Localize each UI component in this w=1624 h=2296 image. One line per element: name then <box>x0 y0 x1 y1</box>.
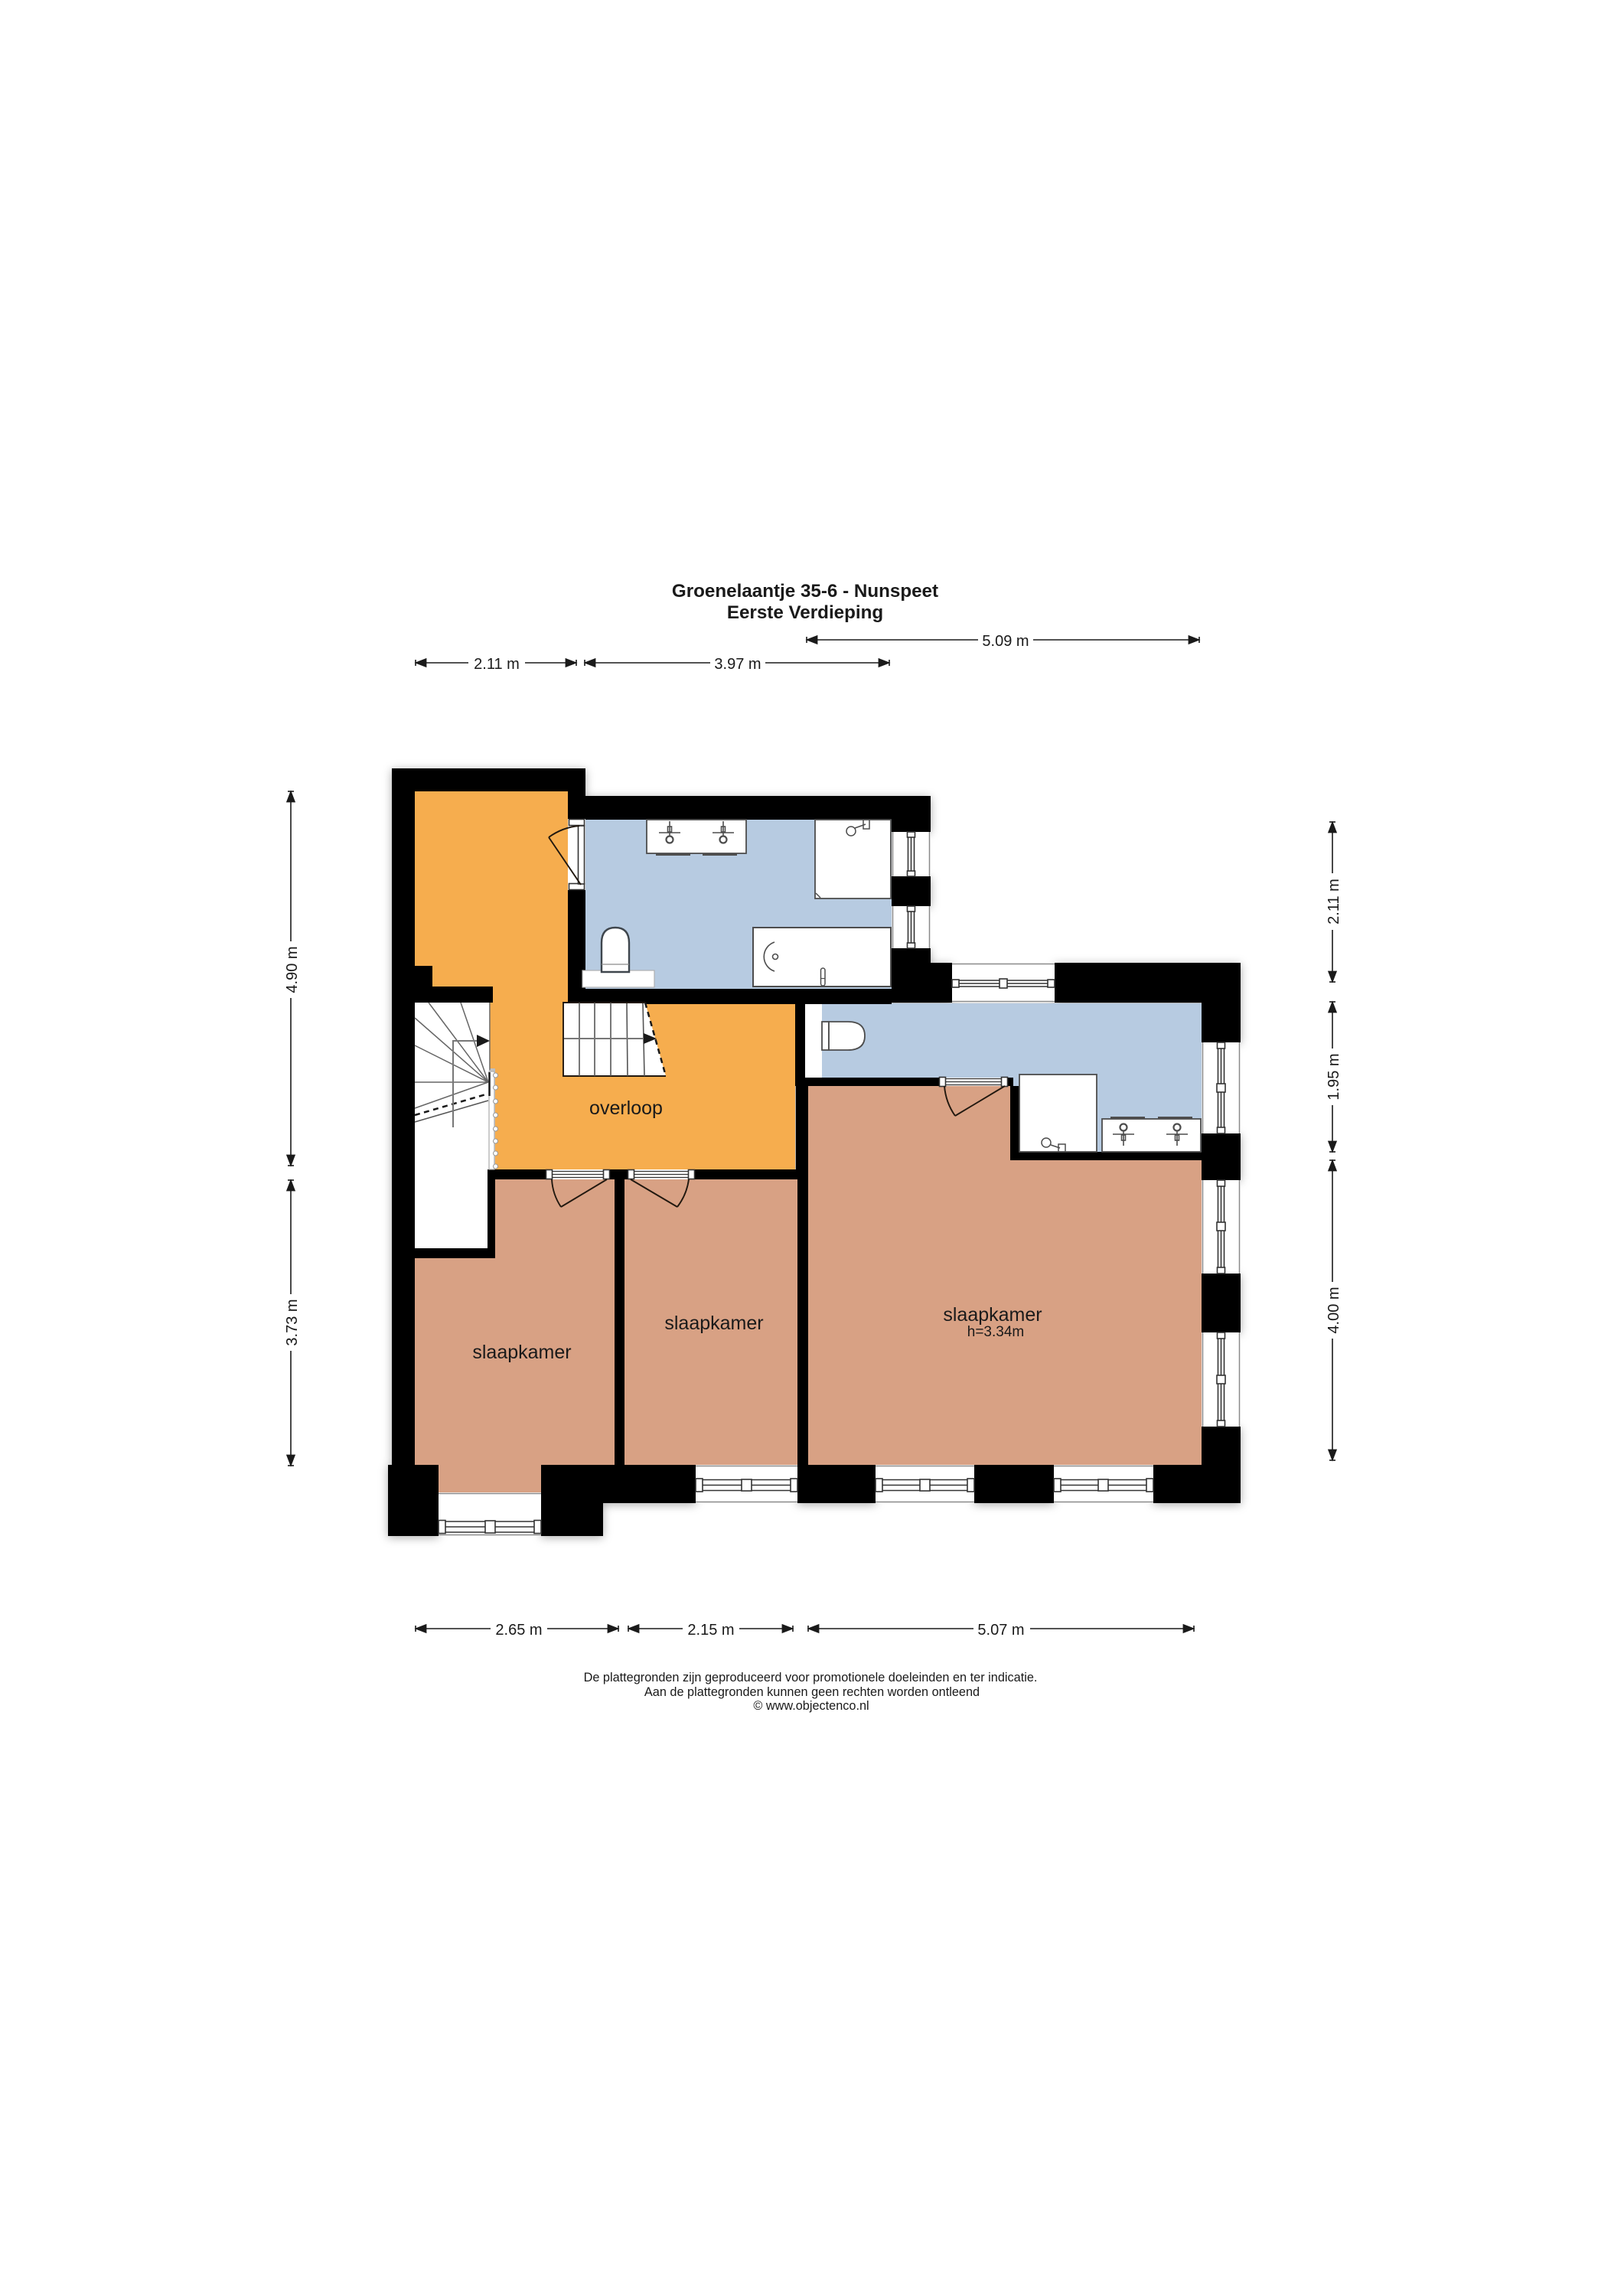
svg-text:h=3.34m: h=3.34m <box>967 1324 1024 1340</box>
svg-text:De plattegronden zijn geproduc: De plattegronden zijn geproduceerd voor … <box>584 1671 1038 1684</box>
svg-text:2.11 m: 2.11 m <box>474 656 520 673</box>
svg-text:2.65 m: 2.65 m <box>495 1622 542 1639</box>
svg-text:4.90 m: 4.90 m <box>284 946 301 993</box>
svg-text:slaapkamer: slaapkamer <box>943 1304 1042 1326</box>
svg-text:1.95 m: 1.95 m <box>1326 1053 1342 1100</box>
svg-text:5.07 m: 5.07 m <box>977 1622 1024 1639</box>
svg-text:Eerste Verdieping: Eerste Verdieping <box>727 602 883 623</box>
svg-text:slaapkamer: slaapkamer <box>664 1313 763 1334</box>
svg-text:4.00 m: 4.00 m <box>1326 1287 1342 1333</box>
svg-text:5.09 m: 5.09 m <box>982 633 1029 650</box>
svg-text:slaapkamer: slaapkamer <box>472 1342 571 1363</box>
svg-text:3.73 m: 3.73 m <box>284 1299 301 1345</box>
svg-text:Groenelaantje 35-6 - Nunspeet: Groenelaantje 35-6 - Nunspeet <box>672 581 938 602</box>
svg-text:2.15 m: 2.15 m <box>687 1622 734 1639</box>
svg-text:2.11 m: 2.11 m <box>1326 879 1342 925</box>
svg-text:overloop: overloop <box>589 1097 663 1119</box>
svg-text:Aan de plattegronden kunnen ge: Aan de plattegronden kunnen geen rechten… <box>644 1685 980 1699</box>
svg-text:© www.objectenco.nl: © www.objectenco.nl <box>753 1699 869 1713</box>
svg-text:3.97 m: 3.97 m <box>714 656 761 673</box>
